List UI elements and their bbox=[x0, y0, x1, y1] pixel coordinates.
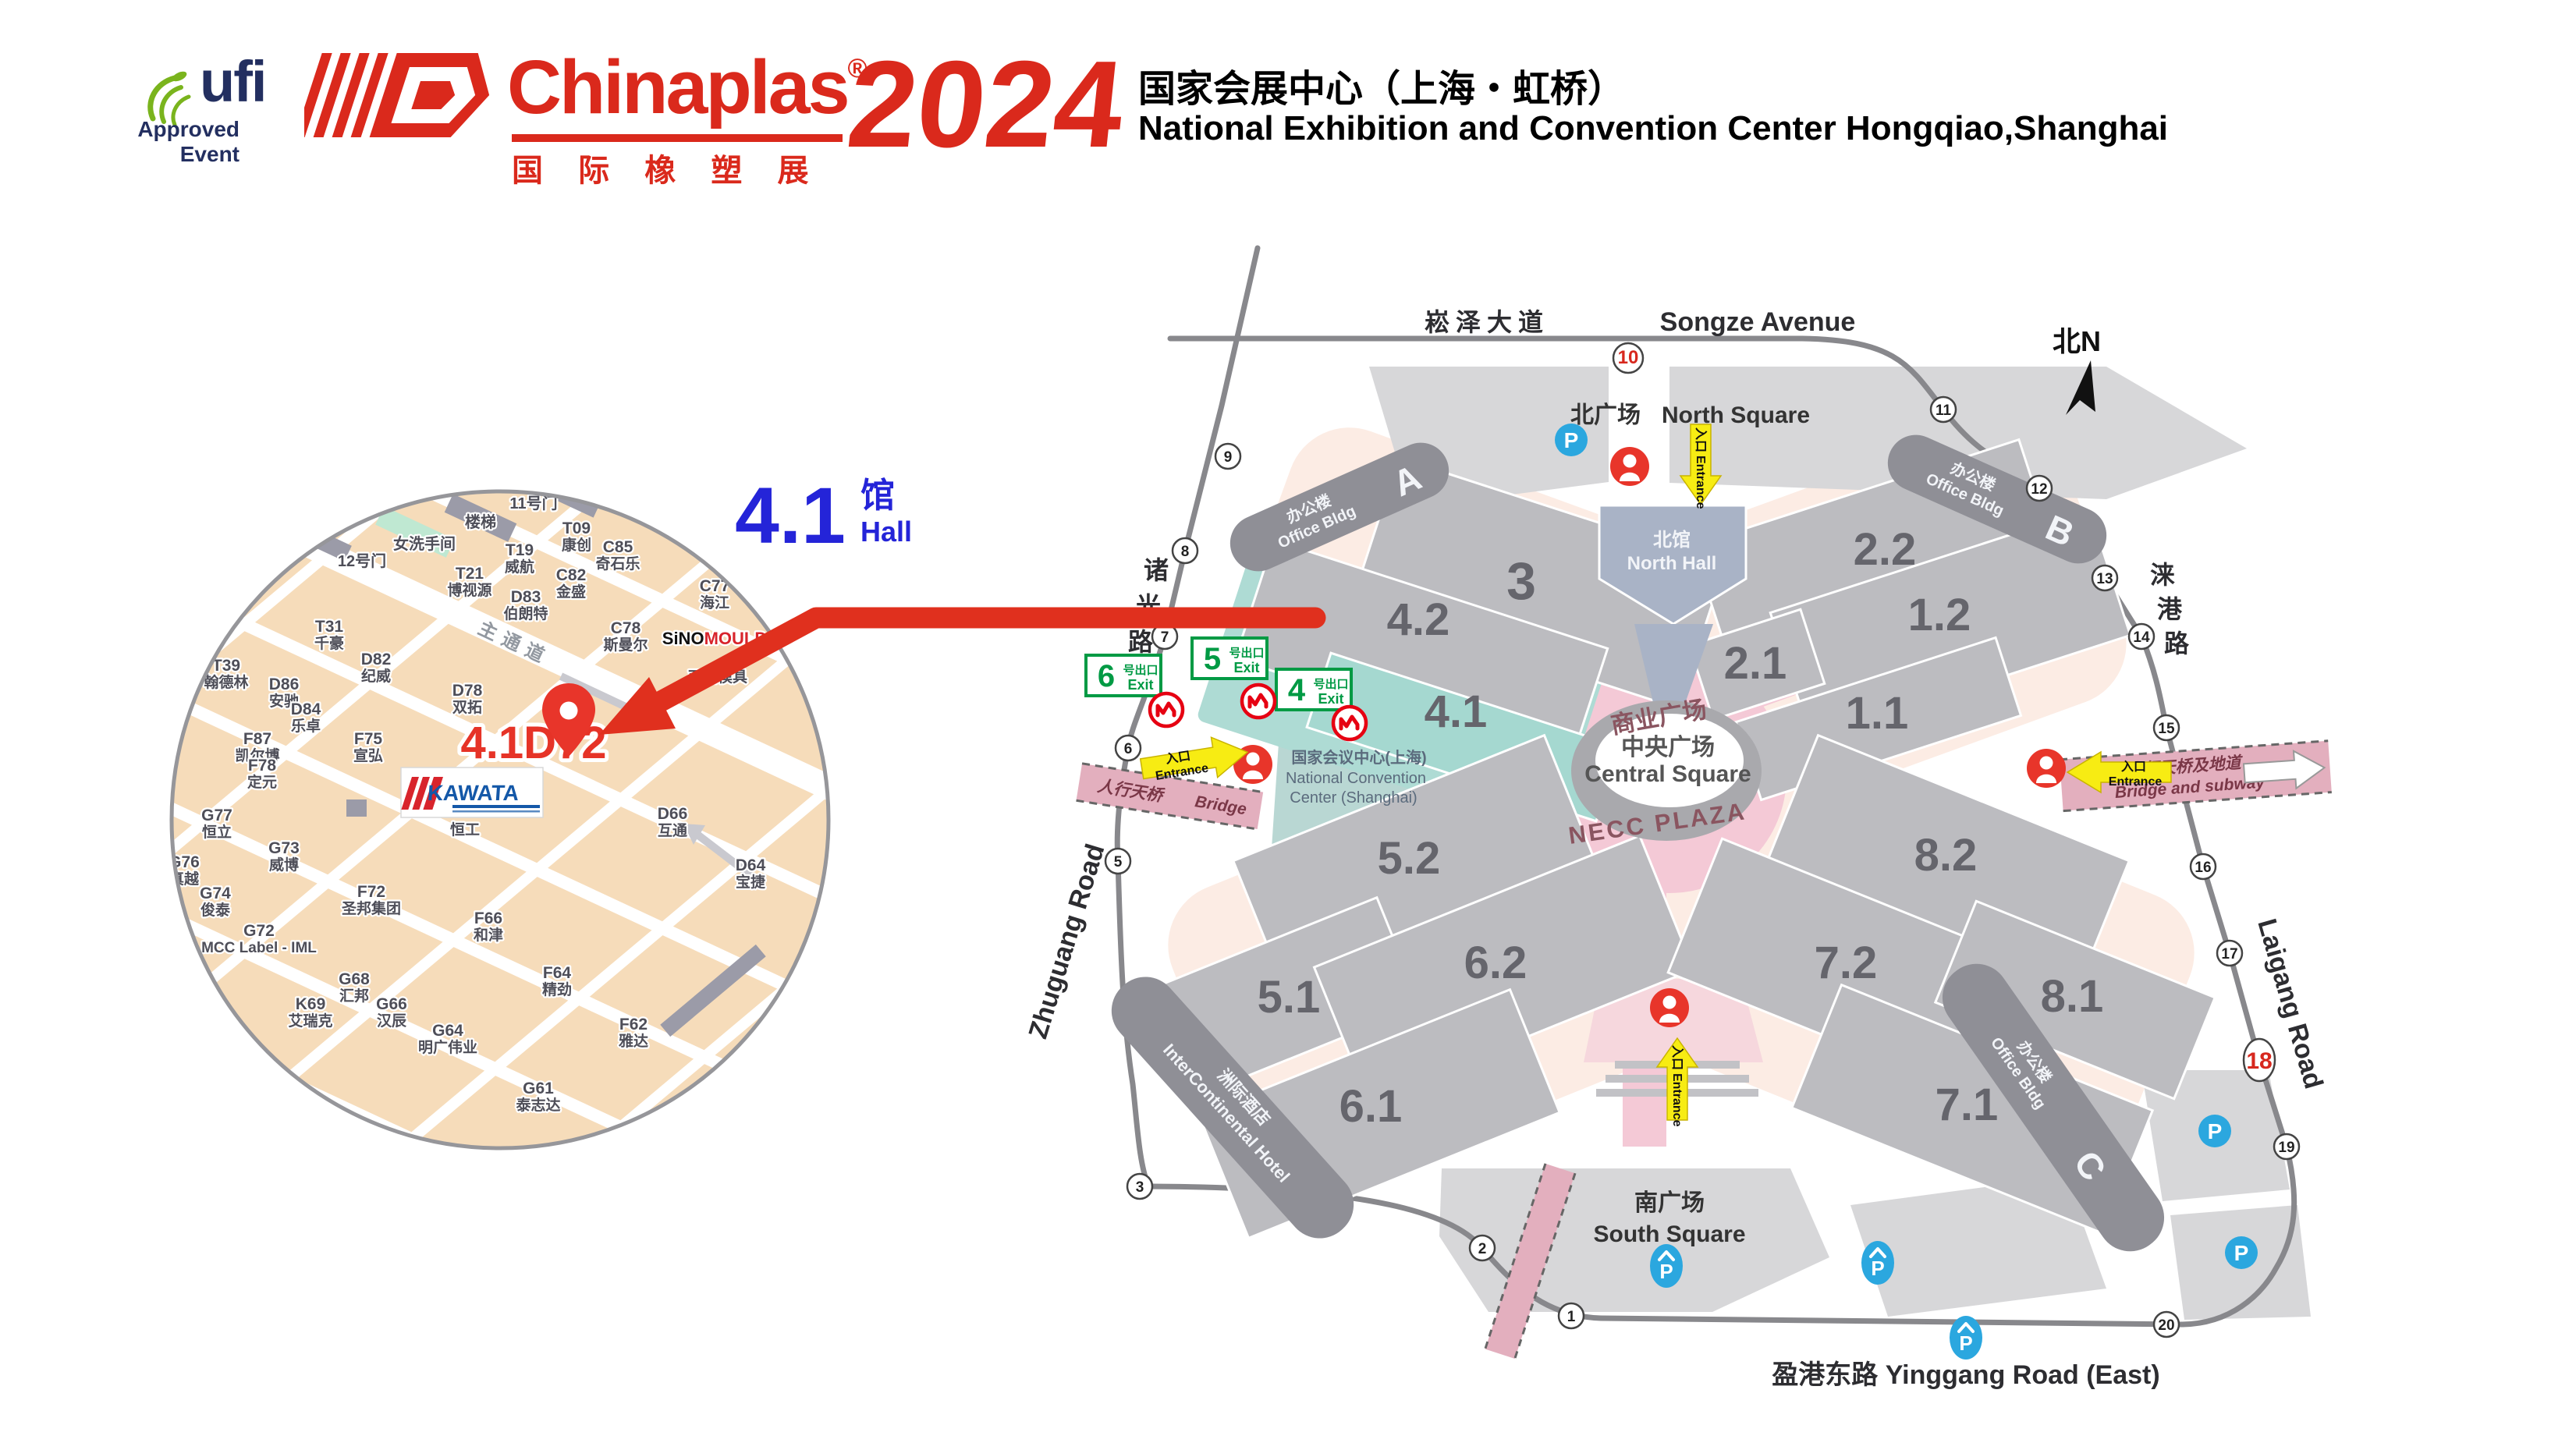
ufi-approved-event: Approved Event bbox=[111, 117, 240, 167]
parking-covered-icon: P bbox=[1861, 1241, 1894, 1285]
road-station-1: 1 bbox=[1559, 1303, 1584, 1328]
booth-label: F64精劲 bbox=[542, 964, 572, 998]
ufi-event: Event bbox=[111, 142, 240, 167]
parking-covered-icon: P bbox=[1650, 1244, 1683, 1288]
exit-4: 4 号出口 Exit bbox=[1276, 669, 1351, 710]
road-station-13: 13 bbox=[2092, 565, 2117, 590]
hall-label-5.2: 5.2 bbox=[1378, 833, 1441, 884]
road-station-16: 16 bbox=[2191, 854, 2216, 879]
venue-title-cn: 国家会展中心（上海・虹桥） bbox=[1138, 58, 1625, 112]
road-station-8: 8 bbox=[1173, 538, 1198, 563]
road-station-9: 9 bbox=[1215, 444, 1240, 469]
road-station-12: 12 bbox=[2027, 476, 2052, 501]
svg-text:7: 7 bbox=[1161, 629, 1169, 646]
brand-cn: 国 际 橡 塑 展 bbox=[512, 145, 821, 190]
booth-label: D66互通 bbox=[658, 805, 688, 839]
songze-avenue-en: Songze Avenue bbox=[1660, 307, 1856, 337]
hall-label-5.1: 5.1 bbox=[1258, 972, 1321, 1023]
floorplan-inset: 主通道 SiNOMOULD T09康创C85奇石乐T19威航T21博视源C82金… bbox=[120, 0, 885, 1450]
ncc-line1: 国家会议中心(上海) bbox=[1291, 748, 1426, 767]
hall-label-4.2: 4.2 bbox=[1387, 594, 1450, 645]
booth-label: F66和津 bbox=[474, 909, 503, 944]
parking-icon: P bbox=[1555, 424, 1588, 456]
facility-label: 女洗手间 bbox=[393, 534, 456, 553]
svg-text:P: P bbox=[1659, 1260, 1673, 1283]
road-station-14: 14 bbox=[2129, 624, 2154, 649]
booth-label: G73威博 bbox=[268, 839, 300, 874]
svg-text:15: 15 bbox=[2158, 721, 2175, 737]
metro-icon bbox=[1150, 693, 1183, 726]
hall-label-6.2: 6.2 bbox=[1464, 938, 1528, 988]
road-station-6: 6 bbox=[1116, 736, 1141, 760]
exit-5-num: 5 bbox=[1204, 642, 1221, 676]
booth-label: D64宝捷 bbox=[736, 856, 766, 891]
brand-year: 2024 bbox=[841, 34, 1130, 175]
hall-label-8.2: 8.2 bbox=[1914, 830, 1978, 881]
facility-label: 楼梯 bbox=[465, 512, 496, 531]
svg-text:9: 9 bbox=[1224, 449, 1233, 466]
svg-text:8: 8 bbox=[1181, 544, 1190, 560]
hall-label-1.1: 1.1 bbox=[1846, 688, 1909, 739]
hall-label-1.2: 1.2 bbox=[1908, 590, 1971, 640]
parking-covered-icon: P bbox=[1950, 1316, 1982, 1360]
svg-text:19: 19 bbox=[2278, 1140, 2294, 1156]
hall-label-4.1: 4.1 bbox=[1425, 686, 1488, 737]
svg-text:12: 12 bbox=[2031, 481, 2047, 498]
entrance-east-cn: 入口 bbox=[2121, 760, 2146, 774]
facility-label: 12号门 bbox=[338, 551, 386, 570]
exit-6-cn: 号出口 bbox=[1123, 663, 1158, 677]
booth-label: G74俊泰 bbox=[200, 885, 231, 919]
laigang-cn-2: 港 bbox=[2157, 595, 2183, 623]
road-station-11: 11 bbox=[1931, 397, 1956, 422]
zhuguang-road-en: Zhuguang Road bbox=[1023, 841, 1110, 1043]
south-square-cn: 南广场 bbox=[1634, 1190, 1705, 1216]
zhuguang-cn-1: 诸 bbox=[1144, 556, 1169, 584]
svg-text:16: 16 bbox=[2195, 860, 2211, 876]
road-station-20: 20 bbox=[2154, 1312, 2179, 1337]
booth-label: F78定元 bbox=[247, 757, 277, 791]
chinaplas-mark bbox=[304, 50, 507, 147]
north-hall-en: North Hall bbox=[1627, 553, 1717, 574]
road-station-18: 18 bbox=[2244, 1039, 2275, 1081]
booth-label: G68汇邦 bbox=[339, 970, 370, 1005]
svg-text:13: 13 bbox=[2096, 571, 2113, 587]
south-square-en: South Square bbox=[1593, 1221, 1745, 1247]
road-station-5: 5 bbox=[1105, 849, 1130, 874]
venue-map: 人行天桥 Bridge 人行天桥及地道 Bridge and subway bbox=[1023, 248, 2331, 1390]
hall-label-2.2: 2.2 bbox=[1854, 524, 1917, 575]
road-station-3: 3 bbox=[1127, 1174, 1152, 1199]
hall-label-7.2: 7.2 bbox=[1815, 938, 1878, 988]
ncc-line3: Center (Shanghai) bbox=[1290, 789, 1417, 807]
parking-icon: P bbox=[2225, 1236, 2258, 1269]
exit-5-cn: 号出口 bbox=[1229, 646, 1264, 660]
central-square-en: Central Square bbox=[1584, 761, 1751, 787]
metro-icon bbox=[1242, 685, 1275, 718]
road-station-17: 17 bbox=[2217, 941, 2242, 966]
security-person-icon bbox=[1650, 988, 1689, 1027]
svg-text:P: P bbox=[1871, 1257, 1884, 1280]
zhuguang-cn-3: 路 bbox=[1128, 628, 1154, 656]
hall-callout-num: 4.1 bbox=[735, 471, 846, 560]
booth-label: T31千豪 bbox=[314, 618, 344, 652]
booth-label: F75宣弘 bbox=[353, 730, 383, 764]
booth-label: D82纪威 bbox=[361, 651, 392, 685]
booth-label: D84乐卓 bbox=[291, 700, 321, 735]
hall-label-7.1: 7.1 bbox=[1936, 1080, 1999, 1130]
exit-6: 6 号出口 Exit bbox=[1086, 655, 1161, 696]
road-station-15: 15 bbox=[2154, 715, 2179, 740]
brand-text: Chinaplas bbox=[507, 44, 848, 129]
hall-label-8.1: 8.1 bbox=[2041, 971, 2104, 1022]
entrance-south-en: Entrance bbox=[1670, 1073, 1684, 1127]
parking-icon: P bbox=[2198, 1115, 2231, 1147]
exit-4-en: Exit bbox=[1318, 691, 1343, 707]
sinomould-black: SiNO bbox=[662, 629, 704, 648]
booth-label: G61泰志达 bbox=[515, 1080, 560, 1114]
exit-5: 5 号出口 Exit bbox=[1192, 638, 1267, 679]
hall-41-callout: 4.1 馆 Hall bbox=[735, 471, 912, 560]
svg-text:11: 11 bbox=[1936, 402, 1952, 419]
booth-label: F62雅达 bbox=[619, 1016, 648, 1050]
ufi-wordmark: ufi bbox=[200, 48, 265, 115]
svg-text:1: 1 bbox=[1567, 1309, 1576, 1325]
road-station-19: 19 bbox=[2274, 1134, 2299, 1159]
svg-text:18: 18 bbox=[2246, 1048, 2272, 1074]
booth-label: G77恒立 bbox=[201, 807, 232, 841]
chinaplas-stripes-icon bbox=[304, 50, 507, 144]
ncc-line2: National Convention bbox=[1286, 770, 1426, 787]
exit-6-en: Exit bbox=[1127, 677, 1153, 693]
booth-label: T09康创 bbox=[562, 519, 591, 554]
security-person-icon bbox=[1610, 447, 1649, 486]
hall-label-6.1: 6.1 bbox=[1339, 1081, 1403, 1132]
exit-4-num: 4 bbox=[1288, 673, 1306, 707]
svg-text:17: 17 bbox=[2221, 946, 2237, 963]
svg-text:3: 3 bbox=[1136, 1179, 1144, 1196]
venue-title-en: National Exhibition and Convention Cente… bbox=[1138, 109, 2168, 148]
entrance-east-en: Entrance bbox=[2109, 775, 2163, 789]
kawata-logo: KAWATA bbox=[401, 768, 543, 817]
hall-label-2.1: 2.1 bbox=[1724, 638, 1787, 689]
svg-text:6: 6 bbox=[1124, 741, 1133, 757]
page: 人行天桥 Bridge 人行天桥及地道 Bridge and subway bbox=[0, 0, 2576, 1450]
laigang-cn-1: 涞 bbox=[2150, 561, 2175, 589]
svg-text:P: P bbox=[2208, 1119, 2223, 1143]
brand-underline bbox=[512, 134, 843, 142]
booth-label: G66汉辰 bbox=[376, 995, 407, 1030]
central-square-cn: 中央广场 bbox=[1621, 735, 1715, 760]
entrance-north-en: Entrance bbox=[1694, 456, 1707, 509]
svg-text:5: 5 bbox=[1114, 854, 1123, 870]
road-station-2: 2 bbox=[1470, 1236, 1495, 1260]
metro-icon bbox=[1333, 707, 1366, 739]
hall-callout-cn: 馆 bbox=[860, 477, 895, 515]
ncc-labels: 国家会议中心(上海) National Convention Center (S… bbox=[1286, 748, 1427, 807]
svg-text:P: P bbox=[1959, 1331, 1972, 1355]
hall-label-3: 3 bbox=[1506, 551, 1536, 611]
road-station-10: 10 bbox=[1613, 343, 1643, 373]
laigang-cn-3: 路 bbox=[2164, 629, 2190, 658]
map-stage: 人行天桥 Bridge 人行天桥及地道 Bridge and subway bbox=[0, 0, 2576, 1450]
svg-text:20: 20 bbox=[2158, 1317, 2174, 1334]
hall-callout-en: Hall bbox=[860, 516, 912, 548]
booth-label: D78双拓 bbox=[452, 682, 483, 716]
booth-label: T19威航 bbox=[505, 541, 534, 576]
compass-label: 北N bbox=[2053, 325, 2101, 357]
north-hall-cn: 北馆 bbox=[1653, 529, 1691, 551]
svg-text:P: P bbox=[1564, 428, 1579, 452]
svg-text:14: 14 bbox=[2133, 629, 2150, 646]
svg-text:10: 10 bbox=[1618, 347, 1639, 368]
svg-text:2: 2 bbox=[1478, 1241, 1487, 1257]
security-person-icon bbox=[2027, 749, 2066, 788]
exit-4-cn: 号出口 bbox=[1313, 677, 1348, 691]
entrance-north-cn: 入口 bbox=[1694, 427, 1708, 452]
yinggang-road-label: 盈港东路 Yinggang Road (East) bbox=[1772, 1360, 2159, 1390]
facility-label: 13号门 bbox=[215, 573, 263, 592]
north-square-en: North Square bbox=[1662, 402, 1810, 428]
entrance-south-cn: 入口 bbox=[1670, 1045, 1684, 1070]
north-square-cn: 北广场 bbox=[1570, 402, 1641, 428]
booth-label: 恒工 bbox=[450, 821, 480, 838]
chinaplas-wordmark: Chinaplas® bbox=[507, 44, 865, 131]
exit-5-en: Exit bbox=[1233, 660, 1259, 675]
ufi-approved: Approved bbox=[111, 117, 240, 142]
songze-avenue-cn: 崧泽大道 bbox=[1425, 308, 1549, 336]
booth-label: C82金盛 bbox=[555, 566, 586, 601]
svg-text:P: P bbox=[2234, 1241, 2249, 1265]
exit-6-num: 6 bbox=[1098, 659, 1115, 693]
kawata-text: KAWATA bbox=[427, 781, 520, 805]
